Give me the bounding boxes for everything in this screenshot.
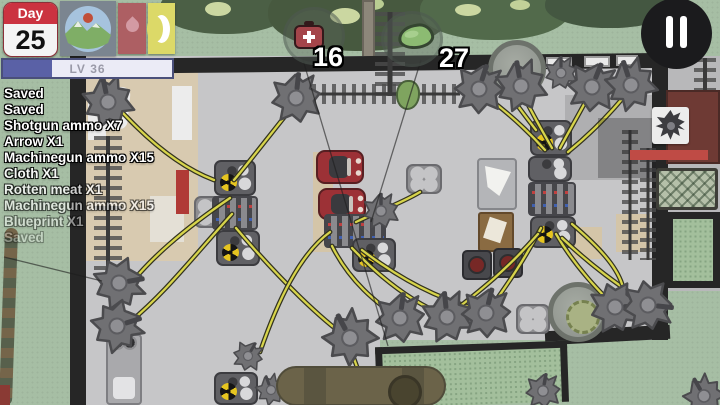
day-calendar: Day 25 xyxy=(3,2,58,57)
garden-plot-right xyxy=(666,212,720,288)
rug xyxy=(572,227,602,259)
wall-window xyxy=(584,56,610,67)
leaf-cluster xyxy=(455,4,481,16)
generator[interactable] xyxy=(528,156,572,182)
solar-panel[interactable] xyxy=(516,304,550,334)
log-entry: Cloth X1 xyxy=(4,166,244,182)
medkit-count: 16 xyxy=(296,42,360,73)
day-label: Day xyxy=(4,3,57,24)
solar-panel[interactable] xyxy=(406,164,442,194)
stove[interactable] xyxy=(462,250,492,280)
generator[interactable] xyxy=(214,372,258,405)
battery-bank[interactable] xyxy=(528,182,576,216)
log-entry: Machinegun ammo X15 xyxy=(4,198,244,214)
platform-shadow xyxy=(598,118,656,178)
turret[interactable] xyxy=(678,368,720,405)
enemy-health-bar xyxy=(630,150,708,160)
log-entry: Saved xyxy=(4,102,244,118)
zombie-icon xyxy=(655,110,686,141)
log-entry: Shotgun ammo X7 xyxy=(4,118,244,134)
barricade-chain xyxy=(0,228,18,405)
log-entry: Saved xyxy=(4,230,244,246)
landscape-icon xyxy=(60,1,116,56)
generator[interactable] xyxy=(530,120,572,156)
generator[interactable] xyxy=(530,216,576,248)
car[interactable] xyxy=(316,150,364,184)
fridge[interactable] xyxy=(477,158,517,210)
log-entry: Blueprint X1 xyxy=(4,214,244,230)
herb-count: 27 xyxy=(422,43,486,74)
log-entry: Arrow X1 xyxy=(4,134,244,150)
washing-machine[interactable] xyxy=(106,334,142,405)
moon-icon xyxy=(153,15,170,43)
water-tank xyxy=(488,40,546,98)
wall-window xyxy=(546,57,572,68)
cardboard-box[interactable] xyxy=(478,212,514,252)
pause-button[interactable] xyxy=(641,0,712,69)
enemy-health-fill xyxy=(630,150,708,160)
landscape-tile xyxy=(60,1,116,56)
log-entry: Rotten meat X1 xyxy=(4,182,244,198)
moon-tile xyxy=(148,3,175,54)
level-label: LV 36 xyxy=(3,60,172,77)
blood-drop-icon xyxy=(123,16,141,34)
zombie-spawn-button[interactable] xyxy=(652,107,689,144)
day-value: 25 xyxy=(4,24,57,57)
level-bar: LV 36 xyxy=(1,58,174,79)
machine-tank xyxy=(548,282,608,342)
spike-crate[interactable] xyxy=(656,168,718,210)
pickup-log: Saved Saved Shotgun ammo X7 Arrow X1 Mac… xyxy=(4,86,244,246)
wall-window xyxy=(616,55,638,66)
stove[interactable] xyxy=(493,248,523,278)
blood-tile xyxy=(118,3,146,54)
red-barrel xyxy=(0,385,10,405)
log-entry: Saved xyxy=(4,86,244,102)
spike-barricade[interactable] xyxy=(312,84,460,104)
leaf-cluster xyxy=(205,2,231,16)
fuel-tanker[interactable] xyxy=(276,366,446,405)
generator[interactable] xyxy=(352,238,396,272)
leaf-cluster xyxy=(510,0,530,10)
log-entry: Machinegun ammo X15 xyxy=(4,150,244,166)
game-screen: 16 27 Day 25 LV 36 Saved Saved Shotgun a… xyxy=(0,0,720,405)
